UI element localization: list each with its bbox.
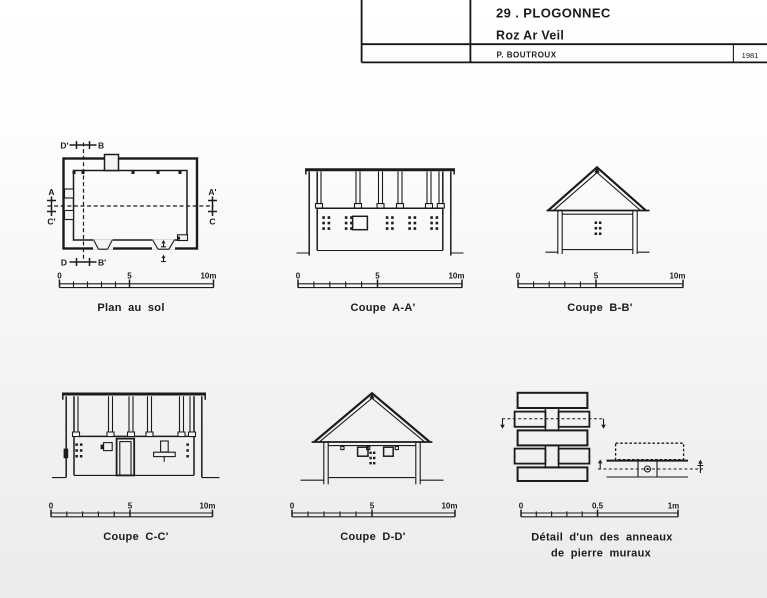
stone-course-1 [518,393,588,408]
coupe-bb-drawing [546,167,650,254]
aa-post-feet [316,204,445,209]
stone-course-3 [518,430,588,445]
coupe-cc-scale-bar: 0 5 10m [49,502,216,517]
scale-end: 1m [668,502,680,511]
scale-end: 10m [199,502,215,511]
dd-ring-marks [369,452,375,465]
bb-roof-outer [549,167,646,210]
panel-coupe-bb: 0 5 10m Coupe B-B' [516,167,686,314]
dd-roof-outer [315,393,430,441]
stone-course-5 [518,467,588,481]
scale-mid: 5 [375,272,380,281]
scale-mid: 5 [128,502,133,511]
panel-label-detail-line1: Détail d'un des anneaux [531,532,673,544]
section-marker-a: A [48,187,54,197]
section-marker-top-ticks [70,141,97,149]
detail-masonry-elevation [500,393,606,481]
section-marker-bottom-ticks [70,258,97,266]
cc-bracket-stem [161,441,169,452]
scale-end: 10m [200,272,216,281]
bb-roof-inner [554,173,640,211]
ring-arrow-left [598,459,602,463]
aa-roof-posts [321,172,439,206]
scale-bar-lines [521,511,678,516]
detail-scale-bar: 0 0.5 1m [519,502,680,517]
ring-section-arrow-stems [600,463,703,474]
plan-drawing: D' B D B' A C' A' C [47,141,217,268]
scale-end: 10m [448,272,464,281]
cc-wall-mark [64,449,69,459]
author-name: P. BOUTROUX [497,51,557,60]
dd-window-right [384,447,394,456]
panel-label-coupe-cc: Coupe C-C' [103,531,169,543]
ring-arrow-right [698,460,702,464]
plan-chimney-bump [105,155,119,171]
panel-label-detail-line2: de pierre muraux [551,548,652,560]
bb-wall-posts [558,211,637,255]
detail-arrow-left [500,425,505,429]
scale-bar-lines [292,511,455,516]
scale-bar-lines [518,282,683,288]
section-marker-d: D [61,258,67,268]
sheet-svg: 29 . PLOGONNEC Roz Ar Veil P. BOUTROUX 1… [0,0,767,598]
plan-post-marks [73,171,182,240]
section-marker-b-prime: B' [98,258,106,268]
aa-window-opening [353,216,368,229]
commune-title: 29 . PLOGONNEC [496,6,611,21]
coupe-dd-drawing [301,393,444,484]
panel-label-coupe-aa: Coupe A-A' [350,302,415,314]
dd-roof-inner [320,398,424,441]
cc-door-leaf [120,442,131,476]
detail-ring-section [598,443,703,477]
panel-label-coupe-dd: Coupe D-D' [340,531,406,543]
coupe-bb-scale-bar: 0 5 10m [516,272,686,288]
coupe-aa-scale-bar: 0 5 10m [296,272,465,288]
panel-label-plan: Plan au sol [97,302,164,314]
plan-inner-wall [74,171,188,241]
scale-zero: 0 [296,272,301,281]
aa-outer-walls [309,172,451,256]
scale-bar-lines [60,282,214,288]
scale-end: 10m [669,272,685,281]
year-value: 1981 [742,51,759,60]
section-marker-d-prime: D' [60,141,68,151]
detail-section-arrows-stems [503,419,604,426]
section-marker-c-prime: C' [47,217,55,227]
cc-shelf [154,452,176,456]
panel-coupe-cc: 0 5 10m Coupe C-C' [49,393,220,543]
bb-ring-marks [595,222,602,236]
coupe-aa-drawing [297,169,464,256]
coupe-cc-drawing [52,393,220,478]
section-marker-c: C [209,217,215,227]
scale-end: 10m [441,502,457,511]
panel-label-coupe-bb: Coupe B-B' [567,302,633,314]
cc-ring-marks [75,443,188,457]
cc-niche-tab [101,445,104,450]
cc-door-frame [117,439,135,476]
coupe-dd-scale-bar: 0 5 10m [290,502,458,517]
aa-inner-wall-faces [317,172,443,251]
scale-mid: 5 [594,272,599,281]
scale-zero: 0 [57,272,62,281]
plan-scale-bar: 0 5 10m [57,272,216,288]
section-marker-a-prime: A' [208,187,216,197]
scale-mid: 0.5 [592,502,604,511]
panel-detail: 0 0.5 1m Détail d'un des anneaux de pier… [500,393,703,560]
plan-wall-niche-1 [65,189,74,198]
panel-coupe-aa: 0 5 10m Coupe A-A' [296,169,465,315]
stone-keystone-2 [545,445,558,467]
scale-bar-lines [298,282,462,288]
panel-plan: D' B D B' A C' A' C 0 5 10m Plan au sol [47,141,217,315]
section-marker-b: B [98,141,104,151]
scale-mid: 5 [127,272,132,281]
detail-arrow-right [601,425,606,429]
cc-wall-niche [104,443,113,451]
scale-bar-lines [51,511,213,516]
site-title: Roz Ar Veil [496,29,564,43]
stone-course-4-right [559,449,590,464]
drawing-sheet: 29 . PLOGONNEC Roz Ar Veil P. BOUTROUX 1… [0,0,767,598]
scale-mid: 5 [370,502,375,511]
cc-roof-posts [78,396,190,434]
scale-zero: 0 [49,502,54,511]
panel-coupe-dd: 0 5 10m Coupe D-D' [290,393,458,543]
scale-zero: 0 [290,502,295,511]
title-block: 29 . PLOGONNEC Roz Ar Veil P. BOUTROUX 1… [362,0,767,62]
axis-symbol-2-head [162,255,166,259]
aa-ring-marks [322,216,438,230]
scale-zero: 0 [519,502,524,511]
plan-wall-niche-2 [65,211,74,220]
scale-zero: 0 [516,272,521,281]
ring-dashed-block [616,443,684,459]
stone-course-4-left [515,449,546,464]
